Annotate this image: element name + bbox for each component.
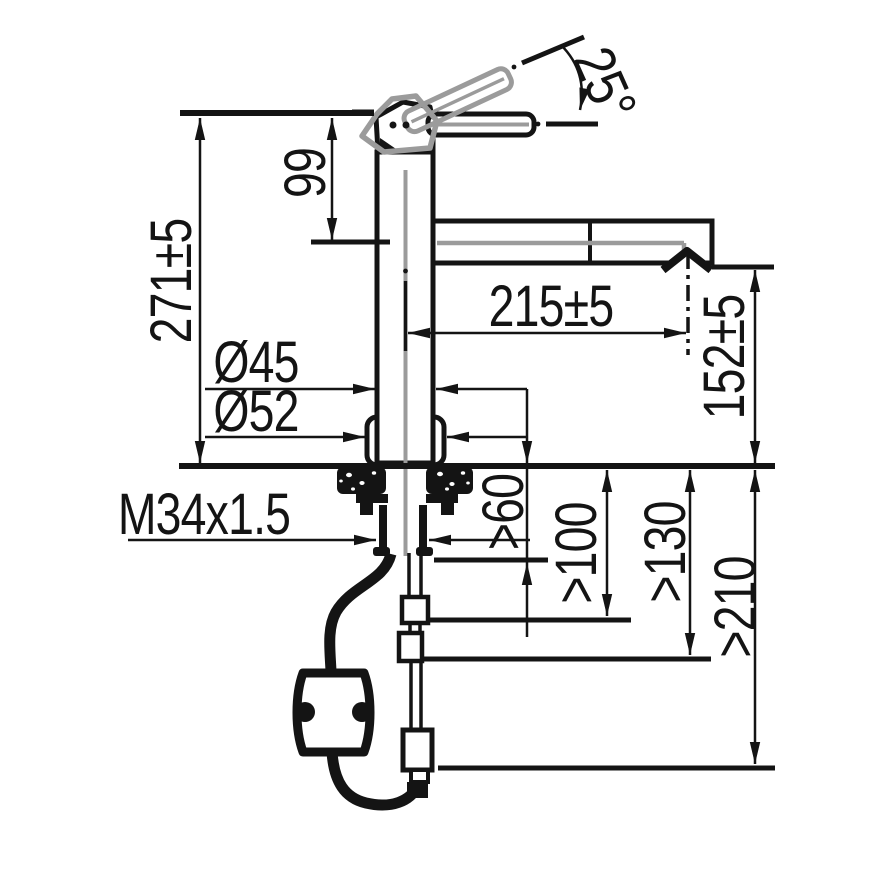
mounting-flange-left <box>337 467 386 494</box>
under-counter-assembly <box>295 467 473 805</box>
dim-clearance-210-label: >210 <box>707 556 765 657</box>
dim-base-diameter-label: Ø52 <box>213 383 298 441</box>
dim-clearance-60-label: >60 <box>475 474 533 550</box>
handle-pivot-dot <box>390 122 397 129</box>
axis-dot <box>403 269 408 274</box>
dim-thread-size-label: M34x1.5 <box>118 486 290 544</box>
dim-spout-reach-label: 215±5 <box>489 278 614 336</box>
dim-outlet-height-label: 152±5 <box>696 295 754 420</box>
dim-head-height-label: 99 <box>277 148 335 198</box>
dim-clearance-130-label: >130 <box>637 501 695 602</box>
threaded-shank-right-wall <box>419 505 427 552</box>
weight-notch-left <box>295 702 315 722</box>
dim-clearance-100-label: >100 <box>548 502 606 603</box>
handle-pivot-dot <box>403 122 410 129</box>
locknut-bracket-right <box>426 494 458 515</box>
weight-notch-right <box>352 702 372 722</box>
threaded-shank-left-wall <box>379 505 387 552</box>
spray-hose-tube <box>399 553 432 798</box>
faucet-line-drawing <box>0 0 886 886</box>
mounting-flange-right <box>426 467 473 494</box>
pullout-hose-upper <box>330 554 391 671</box>
technical-drawing-canvas: 271±5 99 25° 215±5 152±5 Ø45 Ø52 M34x1.5… <box>0 0 886 886</box>
shank-nut-right <box>416 547 433 556</box>
axis-dot <box>512 65 517 70</box>
axis-dot <box>536 122 541 127</box>
dim-total-height-label: 271±5 <box>143 219 201 344</box>
